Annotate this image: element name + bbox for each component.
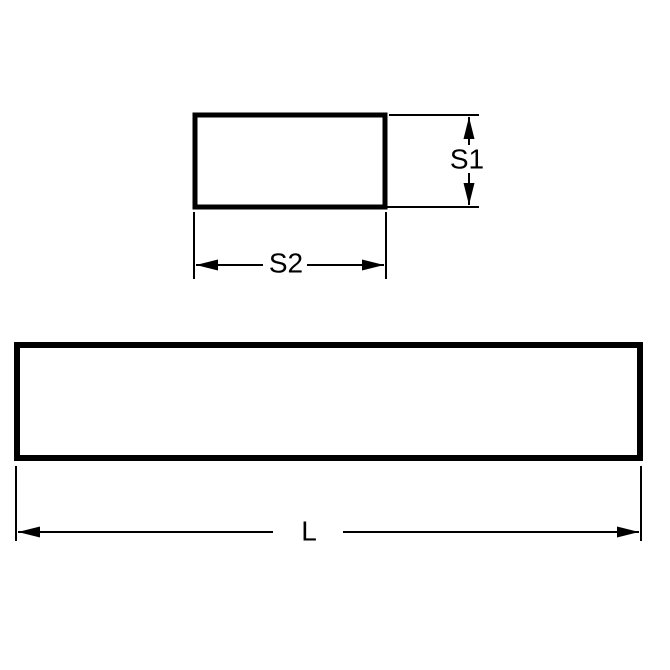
drawing-svg: S1 S2 L — [0, 0, 670, 670]
arrow-up-icon — [464, 117, 475, 139]
arrow-right-icon — [617, 527, 639, 538]
arrow-right-icon — [362, 260, 384, 271]
technical-drawing: S1 S2 L — [0, 0, 670, 670]
arrow-down-icon — [464, 183, 475, 205]
s1-dimension-label: S1 — [450, 144, 484, 175]
cross-section-view: S1 S2 — [194, 115, 484, 279]
l-dimension-label: L — [301, 516, 317, 547]
side-view: L — [16, 345, 641, 547]
side-view-rect — [17, 345, 640, 458]
s2-dimension-label: S2 — [269, 248, 303, 279]
cross-section-rect — [195, 115, 385, 207]
arrow-left-icon — [196, 260, 218, 271]
arrow-left-icon — [18, 527, 40, 538]
